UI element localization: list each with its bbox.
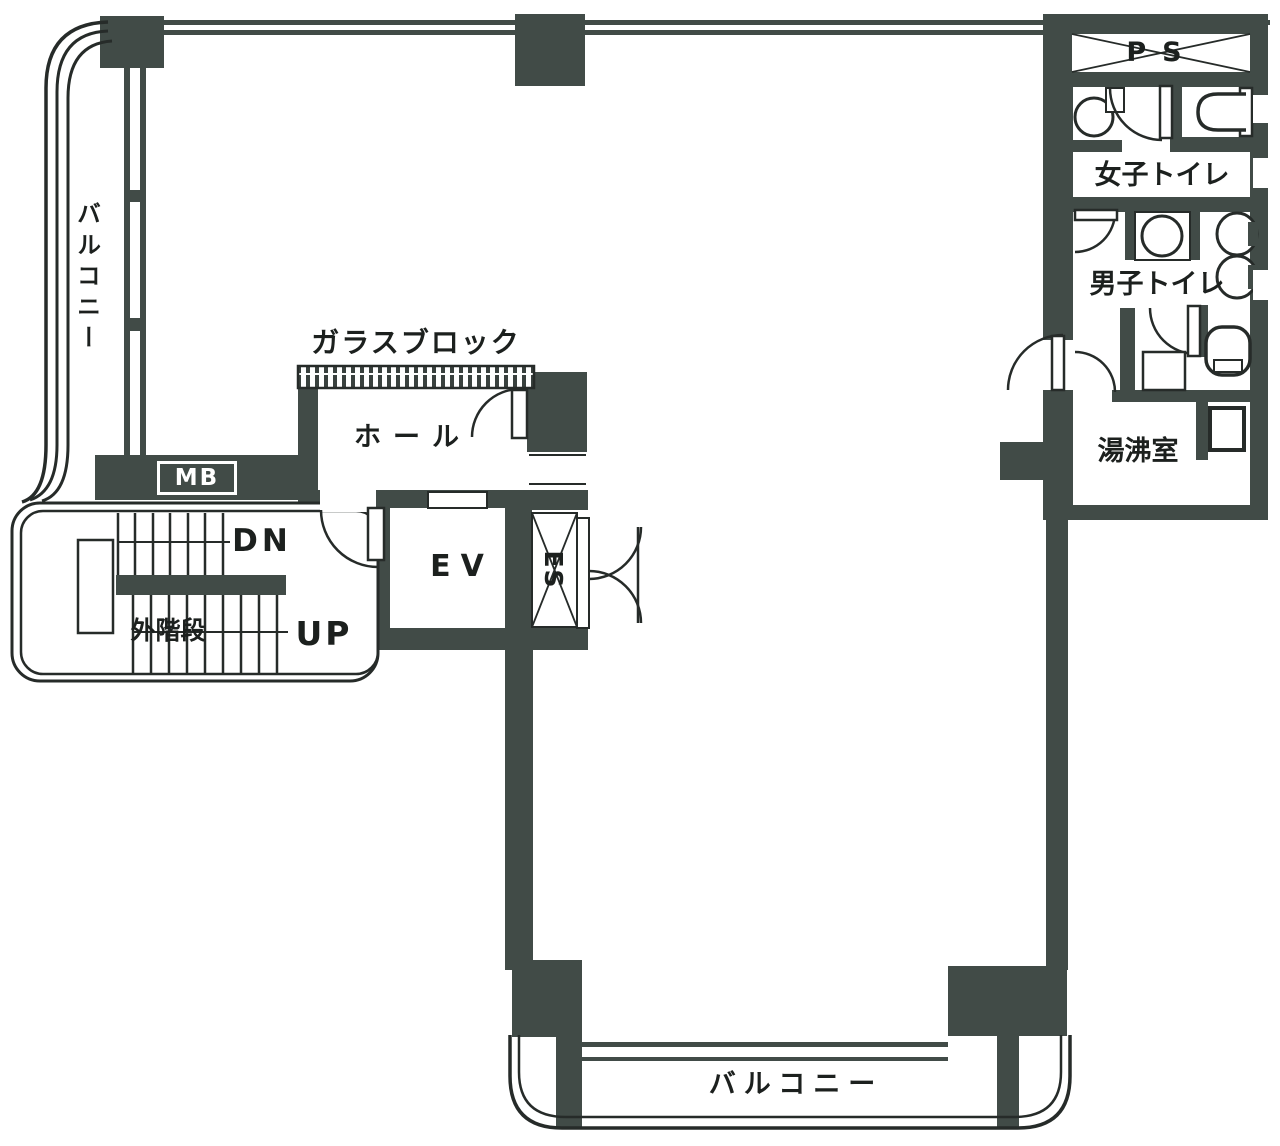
column-bottom-right	[948, 966, 1067, 1036]
stair-core	[78, 540, 113, 633]
wall-hall-left	[298, 372, 318, 505]
wall-top-line-inner	[163, 30, 1043, 35]
column-wing-junction	[1000, 442, 1050, 480]
wall-hall-pier	[527, 372, 587, 452]
wall-wing-left-lower	[1043, 390, 1073, 520]
window-bottom-line1	[573, 1042, 948, 1047]
wing-window-3	[1253, 270, 1268, 300]
label-glass-block: ガラスブロック	[294, 322, 538, 360]
mens-sink	[1142, 216, 1182, 256]
wall-main-left-lower	[505, 650, 533, 970]
label-stairs-down: DN	[228, 522, 296, 560]
label-balcony-left: バルコニー	[66, 186, 108, 370]
wall-wing-bottom	[1043, 505, 1268, 520]
stair-door-leaf	[368, 508, 384, 560]
window-mullion-1	[124, 190, 146, 202]
womens-toilet-bowl	[1198, 94, 1246, 130]
mens-door-leaf	[1075, 210, 1117, 220]
wall-wing-top	[1043, 14, 1268, 34]
wing-window-1	[1253, 95, 1268, 123]
label-es-shaft: ES	[534, 543, 574, 597]
window-mullion-2	[124, 318, 146, 331]
wall-mens-sink-right	[1190, 212, 1200, 260]
wall-mens-corridor	[1120, 308, 1135, 390]
wall-main-right	[1046, 518, 1068, 970]
label-hall: ホール	[330, 416, 495, 452]
wall-hotwater-top	[1112, 390, 1253, 402]
wall-womens-stall	[1178, 137, 1250, 152]
balcony-end-wall-right	[997, 1033, 1019, 1128]
label-pipe-shaft: PS	[1103, 34, 1221, 70]
elevator-door-gap	[428, 492, 487, 508]
hall-door-leaf	[512, 390, 527, 438]
window-wall-left-line1	[124, 64, 130, 456]
wall-ev-bottom	[375, 628, 588, 650]
stair-landing	[116, 575, 286, 595]
label-balcony-bottom: バルコニー	[694, 1062, 898, 1100]
wing-entry-door-leaf	[1052, 336, 1064, 390]
mens-stall-door-leaf	[1188, 306, 1200, 356]
window-wall-left-line2	[140, 64, 146, 456]
label-elevator: EV	[416, 546, 508, 586]
label-mailbox: MB	[157, 461, 237, 495]
floor-plan: バルコニー ガラスブロック ホール MB DN 外階段 UP EV ES PS …	[0, 0, 1280, 1146]
window-bottom-line2	[573, 1057, 948, 1061]
hot-water-sink	[1210, 408, 1244, 450]
glass-block-wall	[298, 366, 534, 388]
label-mens-toilet: 男子トイレ	[1071, 262, 1243, 300]
balcony-end-wall-left	[556, 1033, 582, 1128]
mens-utility-box	[1143, 352, 1185, 390]
womens-door-leaf	[1160, 86, 1172, 138]
hot-water-door-arc	[1075, 352, 1115, 392]
wall-womens-basin	[1072, 140, 1122, 152]
mens-toilet-seat	[1214, 360, 1242, 372]
label-stairs-up: UP	[286, 612, 362, 654]
wall-top-pillar	[515, 14, 585, 86]
label-womens-toilet: 女子トイレ	[1068, 153, 1256, 191]
wall-mens-sink-left	[1125, 212, 1135, 260]
urinal-1-mount	[1248, 222, 1258, 246]
entrance-door-frame	[577, 518, 589, 628]
label-outside-stairs: 外階段	[116, 610, 220, 648]
wall-hotwater-divider	[1196, 402, 1208, 460]
label-hot-water-room: 湯沸室	[1081, 430, 1195, 466]
column-bottom-left	[512, 960, 582, 1037]
